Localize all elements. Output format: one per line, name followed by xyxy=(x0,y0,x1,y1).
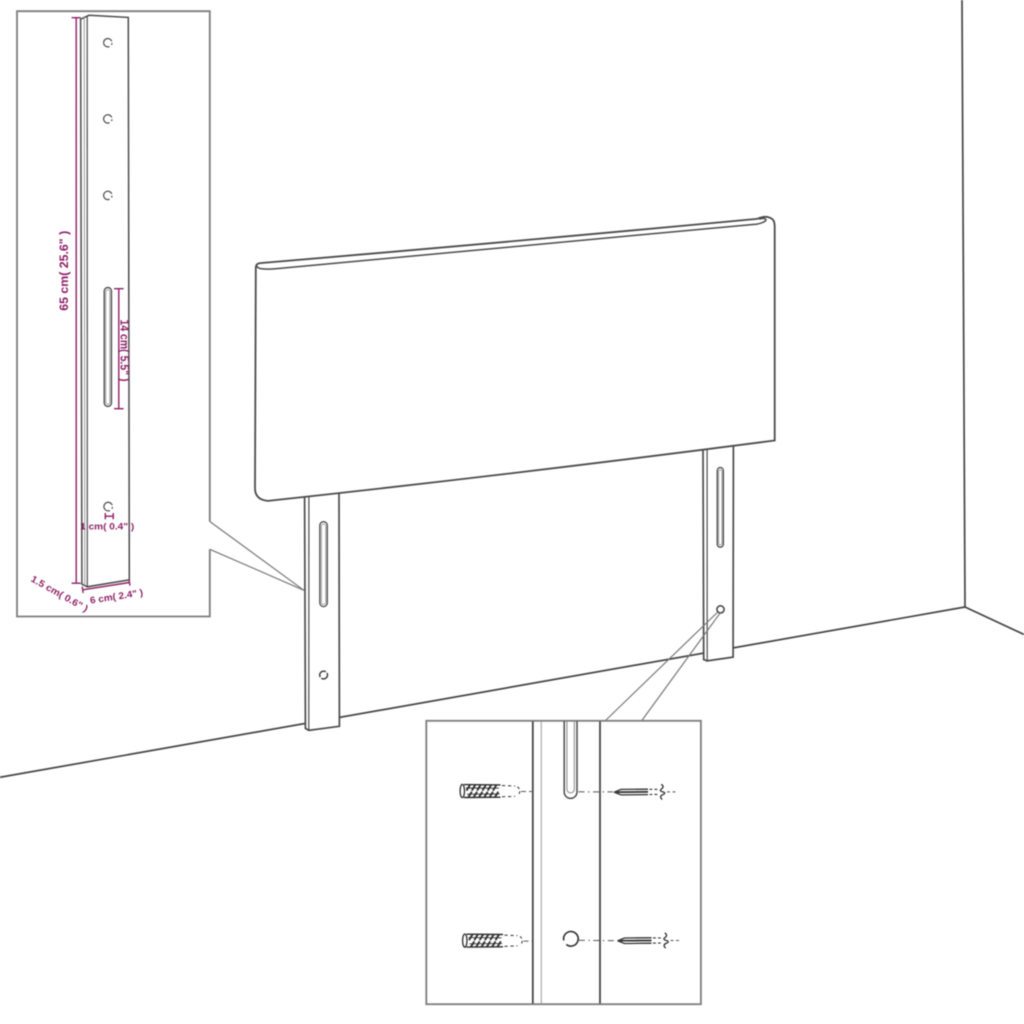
svg-text:14 cm( 5.5" ): 14 cm( 5.5" ) xyxy=(117,320,131,382)
svg-text:1 cm( 0.4" ): 1 cm( 0.4" ) xyxy=(80,522,134,533)
svg-text:65 cm( 25.6" ): 65 cm( 25.6" ) xyxy=(57,231,71,311)
